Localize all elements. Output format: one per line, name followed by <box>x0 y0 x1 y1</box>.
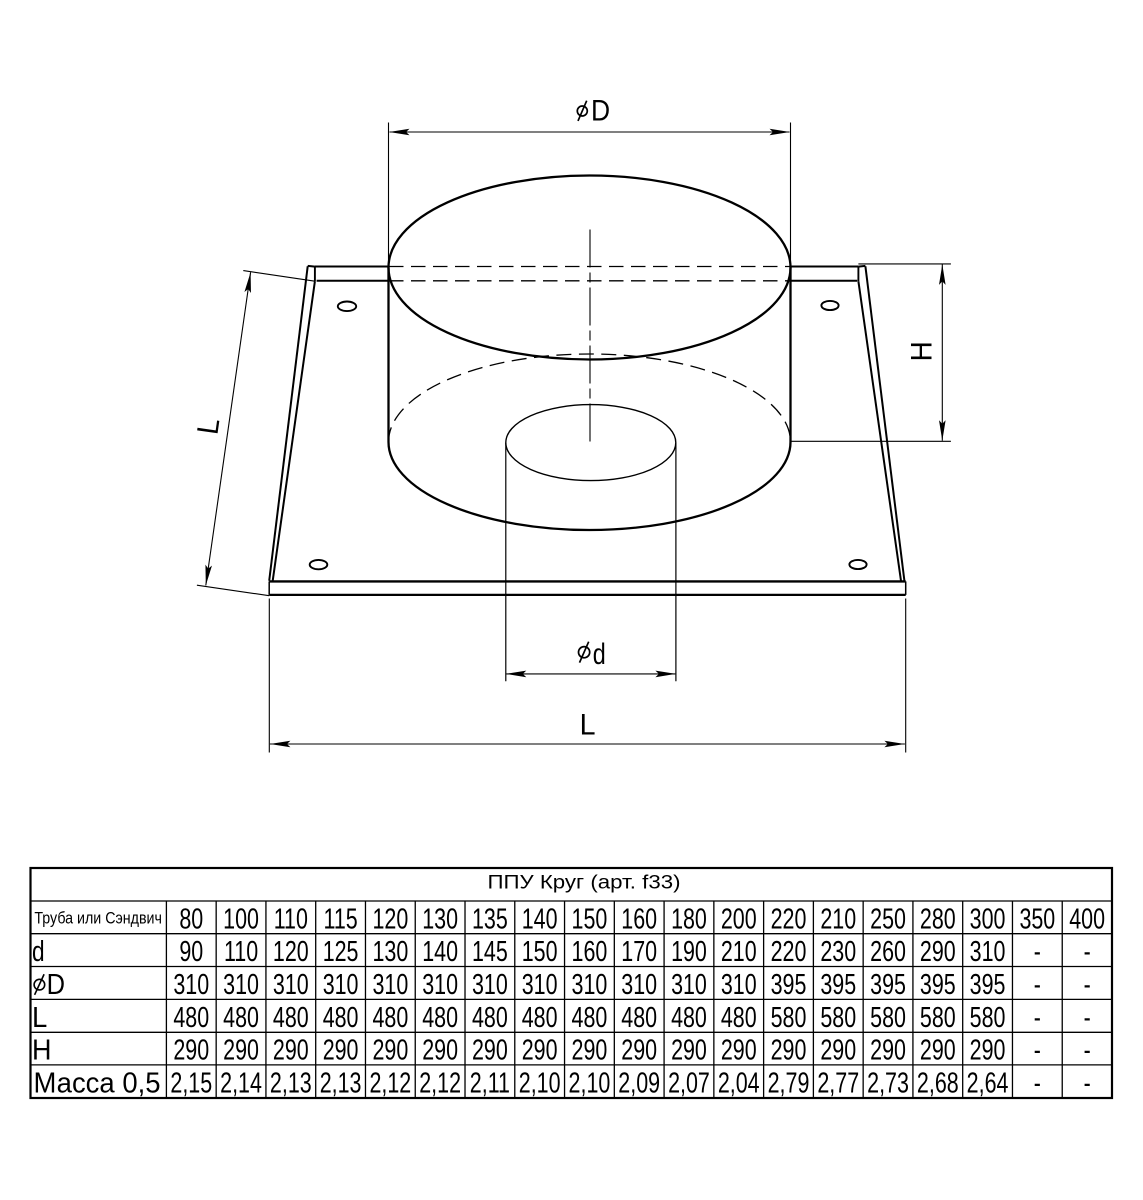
svg-text:290: 290 <box>572 1035 608 1067</box>
svg-text:290: 290 <box>721 1035 757 1067</box>
svg-text:210: 210 <box>820 903 856 935</box>
svg-text:2,77: 2,77 <box>817 1067 859 1099</box>
svg-text:290: 290 <box>920 936 956 968</box>
svg-text:310: 310 <box>372 969 408 1001</box>
svg-text:135: 135 <box>472 903 508 935</box>
svg-text:310: 310 <box>721 969 757 1001</box>
svg-text:200: 200 <box>721 903 757 935</box>
svg-text:480: 480 <box>223 1002 259 1034</box>
svg-text:H: H <box>32 1035 52 1067</box>
svg-text:290: 290 <box>771 1035 807 1067</box>
svg-text:170: 170 <box>621 936 657 968</box>
svg-text:290: 290 <box>323 1035 359 1067</box>
svg-text:2,11: 2,11 <box>470 1067 510 1099</box>
svg-text:220: 220 <box>771 903 807 935</box>
svg-text:-: - <box>1034 1002 1041 1034</box>
svg-text:310: 310 <box>572 969 608 1001</box>
svg-text:2,15: 2,15 <box>170 1067 212 1099</box>
svg-text:310: 310 <box>472 969 508 1001</box>
svg-text:d: d <box>593 638 606 671</box>
svg-text:210: 210 <box>721 936 757 968</box>
svg-text:290: 290 <box>671 1035 707 1067</box>
svg-text:180: 180 <box>671 903 707 935</box>
svg-text:480: 480 <box>522 1002 558 1034</box>
svg-text:145: 145 <box>472 936 508 968</box>
svg-text:480: 480 <box>472 1002 508 1034</box>
svg-text:90: 90 <box>179 936 203 968</box>
svg-text:310: 310 <box>671 969 707 1001</box>
svg-text:140: 140 <box>422 936 458 968</box>
svg-text:-: - <box>1084 1035 1091 1067</box>
svg-text:Труба или Сэндвич: Труба или Сэндвич <box>34 909 161 928</box>
svg-text:220: 220 <box>771 936 807 968</box>
svg-text:395: 395 <box>920 969 956 1001</box>
svg-text:290: 290 <box>522 1035 558 1067</box>
svg-text:395: 395 <box>870 969 906 1001</box>
svg-text:290: 290 <box>970 1035 1006 1067</box>
svg-text:580: 580 <box>920 1002 956 1034</box>
svg-text:160: 160 <box>621 903 657 935</box>
svg-text:2,09: 2,09 <box>618 1067 660 1099</box>
svg-text:310: 310 <box>223 969 259 1001</box>
svg-text:290: 290 <box>422 1035 458 1067</box>
svg-text:-: - <box>1084 969 1091 1001</box>
svg-text:80: 80 <box>179 903 203 935</box>
svg-text:120: 120 <box>273 936 309 968</box>
svg-text:290: 290 <box>372 1035 408 1067</box>
svg-text:d: d <box>32 936 45 968</box>
svg-text:-: - <box>1034 1067 1041 1099</box>
svg-text:290: 290 <box>920 1035 956 1067</box>
svg-text:580: 580 <box>870 1002 906 1034</box>
svg-text:395: 395 <box>771 969 807 1001</box>
svg-text:580: 580 <box>970 1002 1006 1034</box>
svg-text:D: D <box>47 969 65 1001</box>
svg-text:2,13: 2,13 <box>270 1067 312 1099</box>
svg-text:580: 580 <box>771 1002 807 1034</box>
svg-text:250: 250 <box>870 903 906 935</box>
svg-text:2,10: 2,10 <box>519 1067 561 1099</box>
svg-text:L: L <box>32 1002 47 1034</box>
svg-text:290: 290 <box>273 1035 309 1067</box>
svg-text:2,68: 2,68 <box>917 1067 959 1099</box>
svg-text:260: 260 <box>870 936 906 968</box>
svg-text:2,64: 2,64 <box>967 1067 1009 1099</box>
svg-text:115: 115 <box>323 903 357 935</box>
svg-text:2,12: 2,12 <box>419 1067 461 1099</box>
svg-text:H: H <box>905 341 938 361</box>
svg-text:310: 310 <box>173 969 209 1001</box>
svg-text:120: 120 <box>372 903 408 935</box>
svg-text:L: L <box>580 709 596 742</box>
svg-text:2,73: 2,73 <box>867 1067 909 1099</box>
svg-text:310: 310 <box>621 969 657 1001</box>
svg-text:2,79: 2,79 <box>768 1067 810 1099</box>
svg-text:150: 150 <box>572 903 608 935</box>
svg-text:D: D <box>591 95 610 128</box>
svg-text:160: 160 <box>572 936 608 968</box>
svg-text:290: 290 <box>223 1035 259 1067</box>
svg-text:580: 580 <box>820 1002 856 1034</box>
svg-text:110: 110 <box>224 936 258 968</box>
svg-text:290: 290 <box>472 1035 508 1067</box>
svg-text:-: - <box>1034 1035 1041 1067</box>
svg-text:310: 310 <box>422 969 458 1001</box>
svg-text:290: 290 <box>621 1035 657 1067</box>
svg-text:230: 230 <box>820 936 856 968</box>
svg-text:-: - <box>1084 936 1091 968</box>
svg-text:-: - <box>1034 936 1041 968</box>
svg-text:2,12: 2,12 <box>369 1067 411 1099</box>
svg-text:480: 480 <box>422 1002 458 1034</box>
svg-text:150: 150 <box>522 936 558 968</box>
svg-text:125: 125 <box>323 936 359 968</box>
svg-text:480: 480 <box>572 1002 608 1034</box>
svg-text:480: 480 <box>372 1002 408 1034</box>
svg-text:130: 130 <box>372 936 408 968</box>
svg-text:310: 310 <box>323 969 359 1001</box>
svg-text:Масса 0,5: Масса 0,5 <box>34 1067 161 1099</box>
svg-text:290: 290 <box>870 1035 906 1067</box>
svg-text:130: 130 <box>422 903 458 935</box>
svg-text:480: 480 <box>173 1002 209 1034</box>
svg-text:140: 140 <box>522 903 558 935</box>
svg-text:2,14: 2,14 <box>220 1067 262 1099</box>
svg-text:100: 100 <box>223 903 259 935</box>
svg-text:480: 480 <box>621 1002 657 1034</box>
svg-text:190: 190 <box>671 936 707 968</box>
svg-text:310: 310 <box>970 936 1006 968</box>
svg-text:110: 110 <box>274 903 308 935</box>
svg-text:400: 400 <box>1069 903 1105 935</box>
svg-text:290: 290 <box>820 1035 856 1067</box>
svg-text:350: 350 <box>1019 903 1055 935</box>
svg-text:2,13: 2,13 <box>320 1067 362 1099</box>
svg-text:290: 290 <box>173 1035 209 1067</box>
svg-text:-: - <box>1084 1002 1091 1034</box>
svg-text:310: 310 <box>273 969 309 1001</box>
svg-text:480: 480 <box>323 1002 359 1034</box>
svg-text:-: - <box>1084 1067 1091 1099</box>
svg-text:395: 395 <box>970 969 1006 1001</box>
svg-text:L: L <box>191 416 226 436</box>
svg-text:2,10: 2,10 <box>569 1067 611 1099</box>
svg-text:395: 395 <box>820 969 856 1001</box>
svg-text:2,04: 2,04 <box>718 1067 760 1099</box>
svg-text:280: 280 <box>920 903 956 935</box>
svg-text:480: 480 <box>721 1002 757 1034</box>
svg-text:480: 480 <box>273 1002 309 1034</box>
svg-text:ППУ Круг (арт. f33): ППУ Круг (арт. f33) <box>488 872 681 893</box>
svg-text:480: 480 <box>671 1002 707 1034</box>
svg-text:310: 310 <box>522 969 558 1001</box>
svg-text:2,07: 2,07 <box>668 1067 710 1099</box>
svg-text:300: 300 <box>970 903 1006 935</box>
svg-text:-: - <box>1034 969 1041 1001</box>
